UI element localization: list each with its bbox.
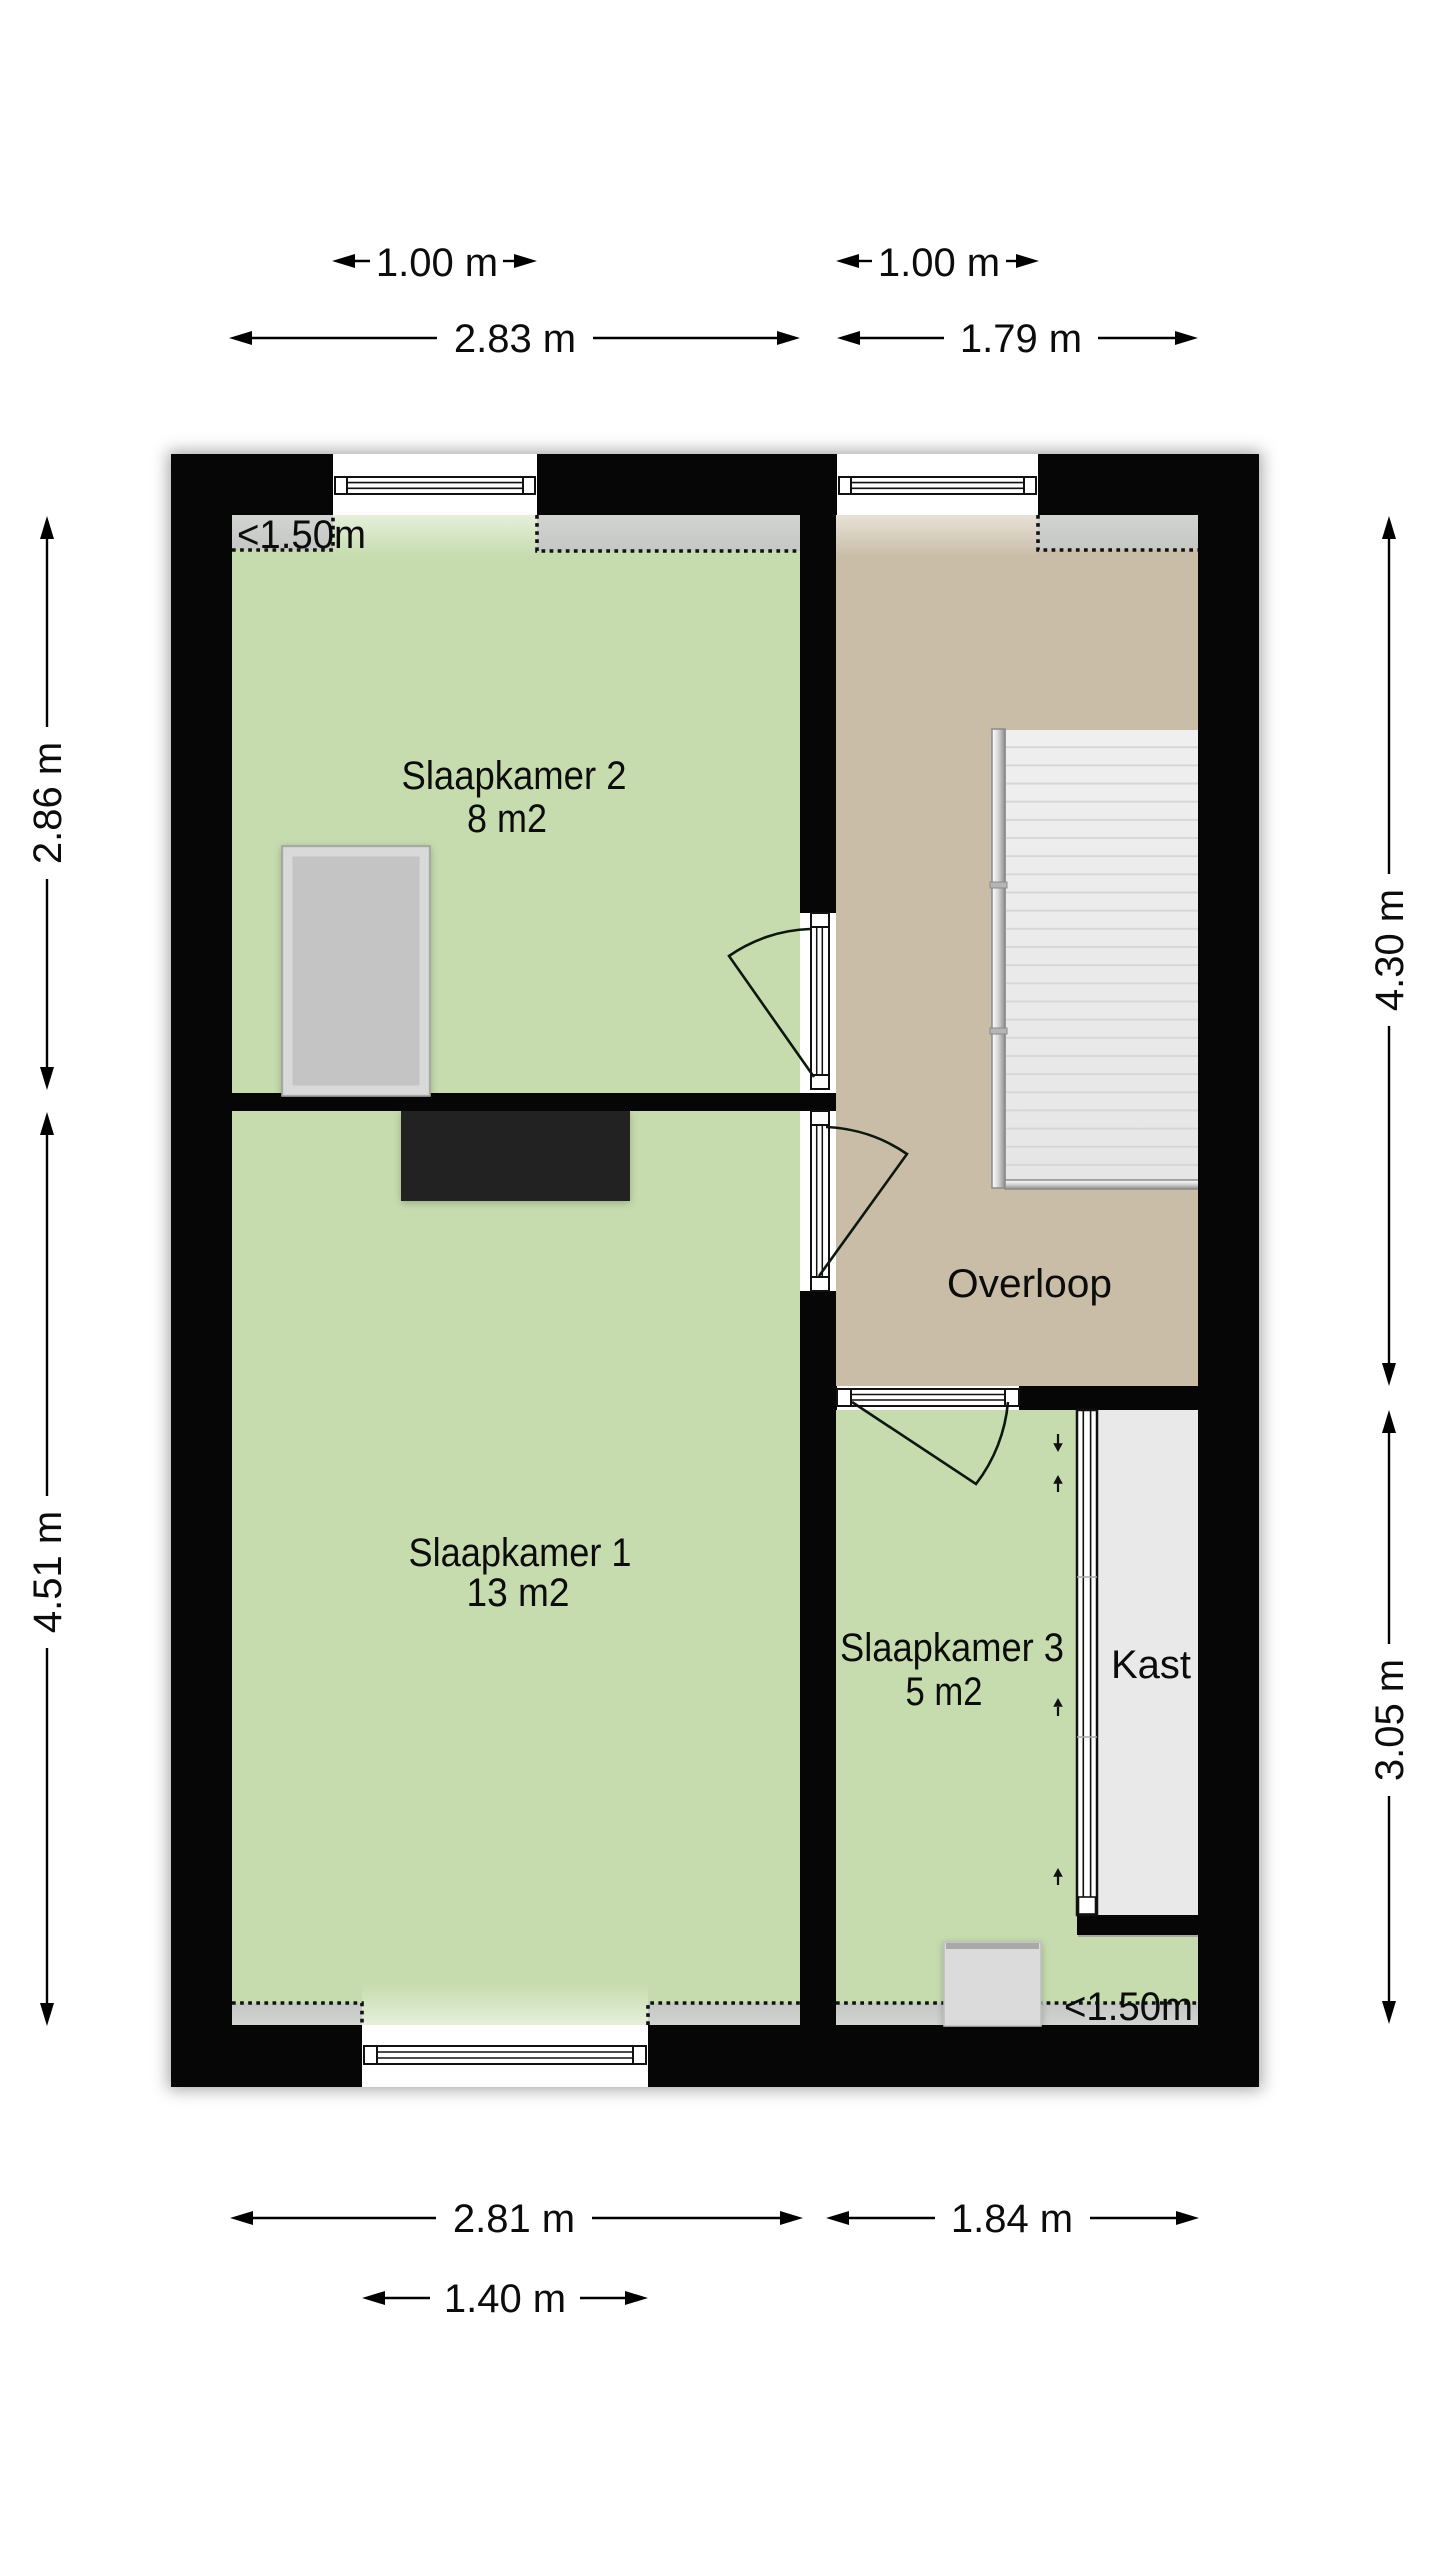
svg-text:1.84 m: 1.84 m [951, 2197, 1073, 2241]
svg-text:4.30 m: 4.30 m [1368, 889, 1412, 1011]
svg-text:Slaapkamer 1: Slaapkamer 1 [409, 1531, 632, 1575]
svg-text:1.79 m: 1.79 m [960, 317, 1082, 361]
svg-text:8 m2: 8 m2 [467, 797, 547, 841]
svg-text:Kast: Kast [1111, 1643, 1191, 1687]
svg-text:2.81 m: 2.81 m [453, 2197, 575, 2241]
svg-text:2.86 m: 2.86 m [26, 742, 70, 864]
svg-text:1.40 m: 1.40 m [444, 2277, 566, 2321]
svg-text:13 m2: 13 m2 [467, 1571, 570, 1615]
svg-text:<1.50m: <1.50m [237, 513, 366, 557]
svg-text:1.00 m: 1.00 m [878, 241, 1000, 285]
svg-text:3.05 m: 3.05 m [1368, 1659, 1412, 1781]
svg-text:4.51 m: 4.51 m [26, 1511, 70, 1633]
svg-text:2.83 m: 2.83 m [454, 317, 576, 361]
svg-text:Slaapkamer 3: Slaapkamer 3 [840, 1626, 1064, 1670]
svg-text:Slaapkamer 2: Slaapkamer 2 [402, 754, 627, 798]
svg-text:Overloop: Overloop [947, 1262, 1112, 1306]
svg-text:5 m2: 5 m2 [906, 1670, 983, 1714]
svg-text:<1.50m: <1.50m [1064, 1985, 1193, 2029]
svg-text:1.00 m: 1.00 m [376, 241, 498, 285]
